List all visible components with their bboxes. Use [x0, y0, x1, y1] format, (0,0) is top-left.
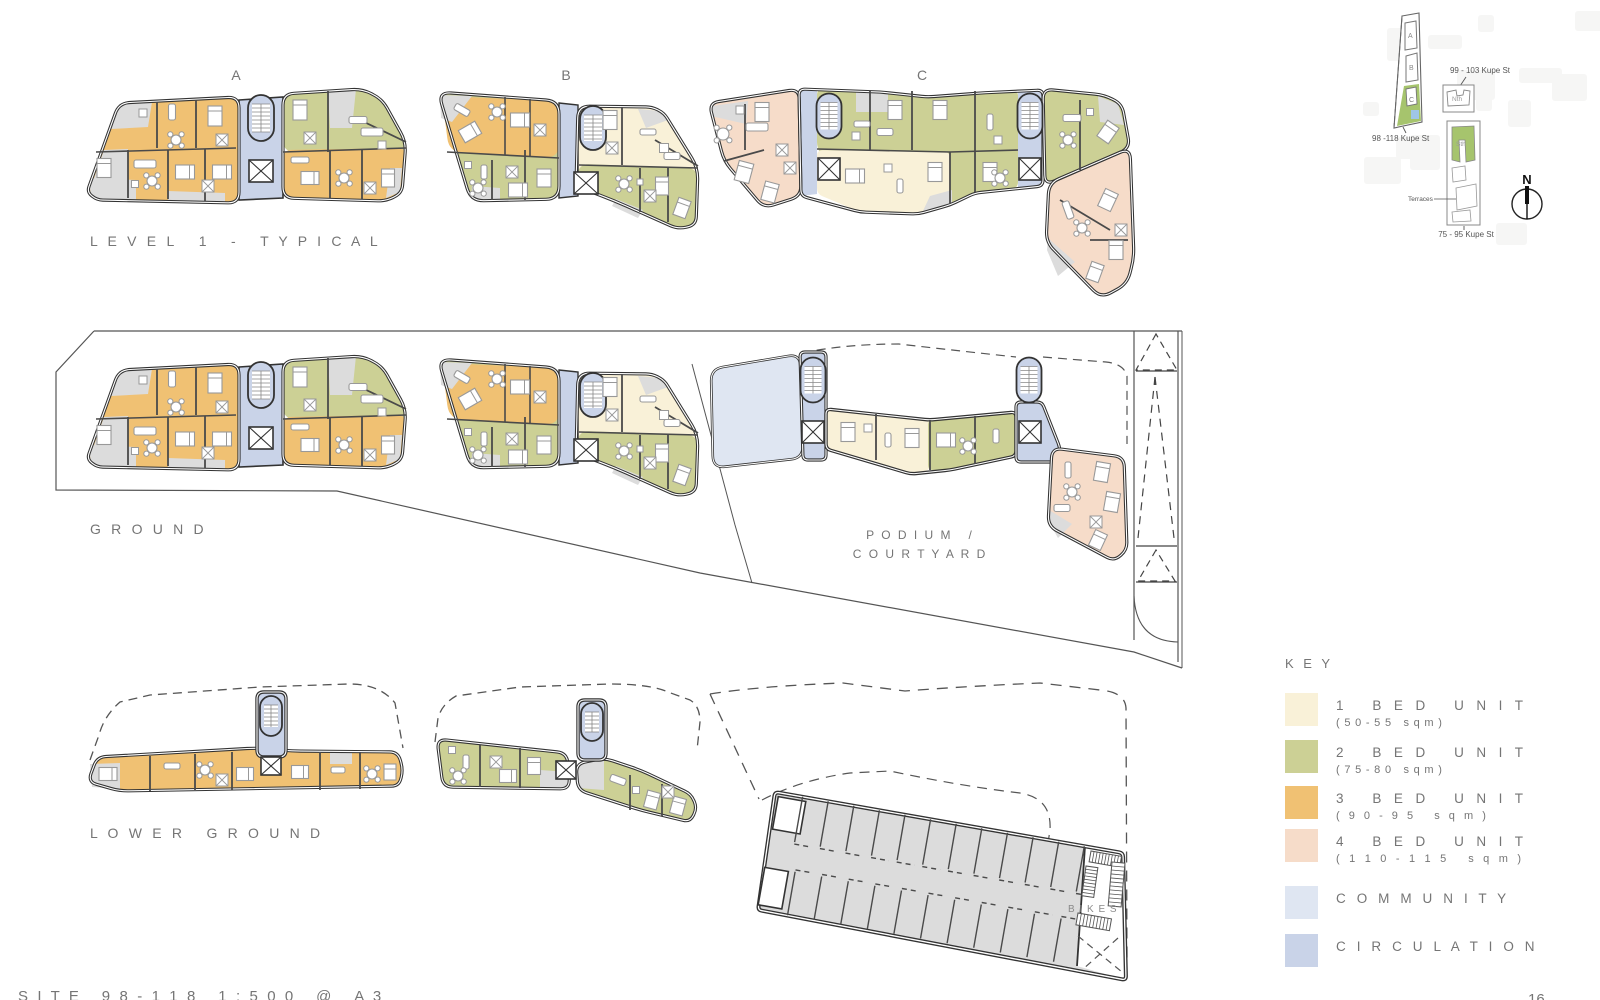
svg-text:G R O U N D: G R O U N D	[90, 521, 207, 537]
svg-text:K E Y: K E Y	[1285, 656, 1333, 671]
svg-text:99 - 103 Kupe St: 99 - 103 Kupe St	[1450, 66, 1511, 75]
svg-text:( 9 0 - 9 5 s q m ): ( 9 0 - 9 5 s q m )	[1336, 810, 1489, 822]
svg-text:L E V E L 1 - T Y P I C: L E V E L 1 - T Y P I C A L	[90, 233, 381, 249]
svg-text:1 B E D U N I T: 1 B E D U N I T	[1336, 698, 1527, 713]
svg-text:C I R C U L A T I O N: C I R C U L A T I O N	[1336, 939, 1538, 954]
svg-text:C: C	[1409, 97, 1414, 104]
svg-text:Terraces: Terraces	[1408, 196, 1434, 203]
svg-text:16: 16	[1528, 991, 1545, 1000]
svg-text:S I T E 9 8 - 1 1 8 1 : 5: S I T E 9 8 - 1 1 8 1 : 5 0 0 @ A 3	[18, 988, 384, 1000]
svg-text:N: N	[1522, 172, 1531, 187]
svg-text:4 B E D U N I T: 4 B E D U N I T	[1336, 834, 1527, 849]
svg-text:( 7 5 - 8 0 s q m ): ( 7 5 - 8 0 s q m )	[1336, 764, 1443, 776]
svg-text:( 5 0 - 5 5 s q m ): ( 5 0 - 5 5 s q m )	[1336, 717, 1443, 729]
svg-text:B I K E S: B I K E S	[1068, 904, 1118, 915]
svg-text:P O D I U M /: P O D I U M /	[866, 528, 974, 542]
svg-text:Sth: Sth	[1456, 141, 1466, 148]
svg-text:75 - 95 Kupe St: 75 - 95 Kupe St	[1438, 230, 1494, 239]
svg-text:C: C	[917, 67, 927, 83]
svg-text:2 B E D U N I T: 2 B E D U N I T	[1336, 745, 1527, 760]
svg-text:A: A	[231, 67, 241, 83]
svg-text:A: A	[1408, 33, 1413, 40]
svg-text:C O M M U N I T Y: C O M M U N I T Y	[1336, 891, 1510, 906]
svg-text:B: B	[1409, 65, 1414, 72]
svg-text:C O U R T Y A R D: C O U R T Y A R D	[853, 547, 987, 561]
svg-text:B: B	[561, 67, 570, 83]
svg-text:Nth: Nth	[1452, 96, 1463, 103]
svg-text:L O W E R G R O U N D: L O W E R G R O U N D	[90, 825, 323, 841]
svg-text:( 1 1 0 - 1 1 5 s q m ): ( 1 1 0 - 1 1 5 s q m )	[1336, 853, 1524, 865]
svg-text:98 -118 Kupe St: 98 -118 Kupe St	[1372, 134, 1430, 143]
svg-text:3 B E D U N I T: 3 B E D U N I T	[1336, 791, 1527, 806]
